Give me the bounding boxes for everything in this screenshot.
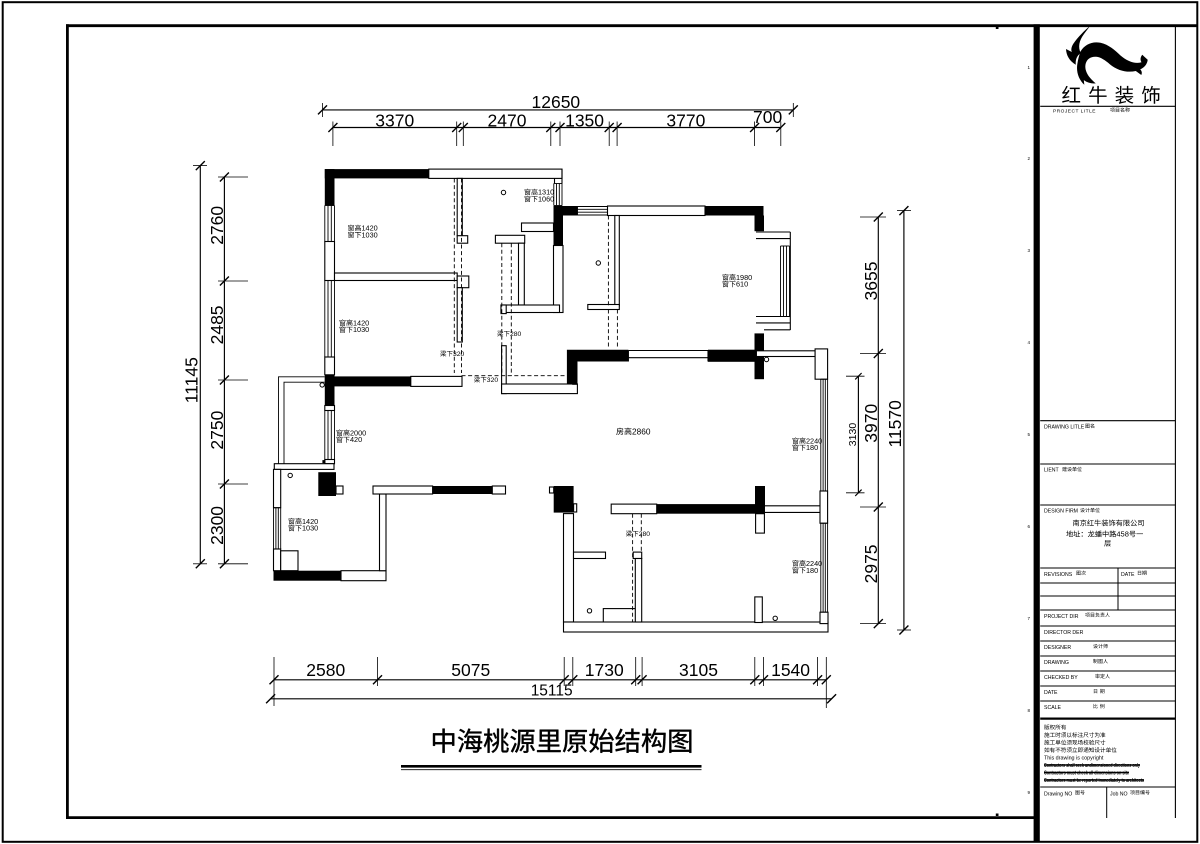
- svg-text:280: 280: [510, 331, 522, 338]
- svg-text:PROJECT LITLE: PROJECT LITLE: [1053, 109, 1096, 115]
- svg-text:3130: 3130: [847, 423, 859, 447]
- svg-text:15115: 15115: [531, 683, 573, 700]
- svg-text:1730: 1730: [585, 660, 624, 680]
- svg-text:420: 420: [350, 435, 362, 444]
- svg-text:2975: 2975: [861, 544, 881, 583]
- svg-text:DATE: DATE: [1044, 690, 1058, 696]
- svg-text:2580: 2580: [306, 660, 345, 680]
- svg-text:11145: 11145: [182, 357, 202, 403]
- svg-text:3655: 3655: [861, 262, 881, 301]
- svg-text:1030: 1030: [353, 325, 369, 334]
- svg-text:180: 180: [806, 566, 818, 575]
- svg-text:1030: 1030: [302, 524, 318, 533]
- svg-text:2760: 2760: [207, 206, 227, 245]
- svg-text:Contractors must check all dim: Contractors must check all dimensions on…: [1044, 770, 1129, 776]
- svg-text:320: 320: [487, 377, 499, 384]
- svg-text:610: 610: [736, 280, 748, 289]
- svg-text:DESIGN FIRM: DESIGN FIRM: [1044, 509, 1078, 515]
- svg-text:3770: 3770: [666, 110, 705, 130]
- svg-text:5075: 5075: [451, 660, 490, 680]
- svg-text:3970: 3970: [861, 404, 881, 443]
- svg-text:Job NO: Job NO: [1110, 792, 1128, 798]
- svg-text:Drawing NO: Drawing NO: [1044, 792, 1072, 798]
- svg-text:DATE: DATE: [1121, 572, 1135, 578]
- svg-text:PROJECT DIR: PROJECT DIR: [1044, 614, 1079, 620]
- svg-text:CHECKED BY: CHECKED BY: [1044, 675, 1078, 681]
- svg-text:180: 180: [806, 443, 818, 452]
- svg-text:2470: 2470: [488, 110, 527, 130]
- svg-text:DRAWING LITLE: DRAWING LITLE: [1044, 425, 1085, 431]
- svg-text:1540: 1540: [771, 660, 810, 680]
- svg-text:320: 320: [453, 351, 465, 358]
- svg-text:LIENT: LIENT: [1044, 468, 1060, 474]
- svg-text:3370: 3370: [375, 110, 414, 130]
- svg-text:DRAWING: DRAWING: [1044, 660, 1069, 666]
- svg-text:3105: 3105: [679, 660, 718, 680]
- svg-text:Contractors shall seek undimen: Contractors shall seek undimensioned dir…: [1044, 763, 1140, 769]
- svg-text:458: 458: [1116, 530, 1129, 539]
- svg-text:2750: 2750: [207, 410, 227, 449]
- svg-text:This drawing is copyright: This drawing is copyright: [1044, 755, 1104, 761]
- svg-text:1350: 1350: [565, 110, 604, 130]
- svg-text:280: 280: [639, 531, 651, 538]
- svg-text:2860: 2860: [632, 426, 651, 436]
- svg-text:12650: 12650: [532, 92, 581, 112]
- svg-text:SCALE: SCALE: [1044, 705, 1062, 711]
- svg-text:1060: 1060: [538, 195, 554, 204]
- svg-text:DESIGNER: DESIGNER: [1044, 645, 1071, 651]
- svg-text:DIRECTOR DER: DIRECTOR DER: [1044, 630, 1084, 636]
- svg-text:REVISIONS: REVISIONS: [1044, 572, 1073, 578]
- svg-text:11570: 11570: [885, 400, 905, 448]
- svg-text:2300: 2300: [207, 506, 227, 545]
- svg-text:Contractors must be reported i: Contractors must be reported immediately…: [1044, 778, 1144, 784]
- svg-text:2485: 2485: [207, 305, 227, 344]
- svg-text:1030: 1030: [362, 230, 378, 239]
- svg-text:700: 700: [753, 107, 782, 127]
